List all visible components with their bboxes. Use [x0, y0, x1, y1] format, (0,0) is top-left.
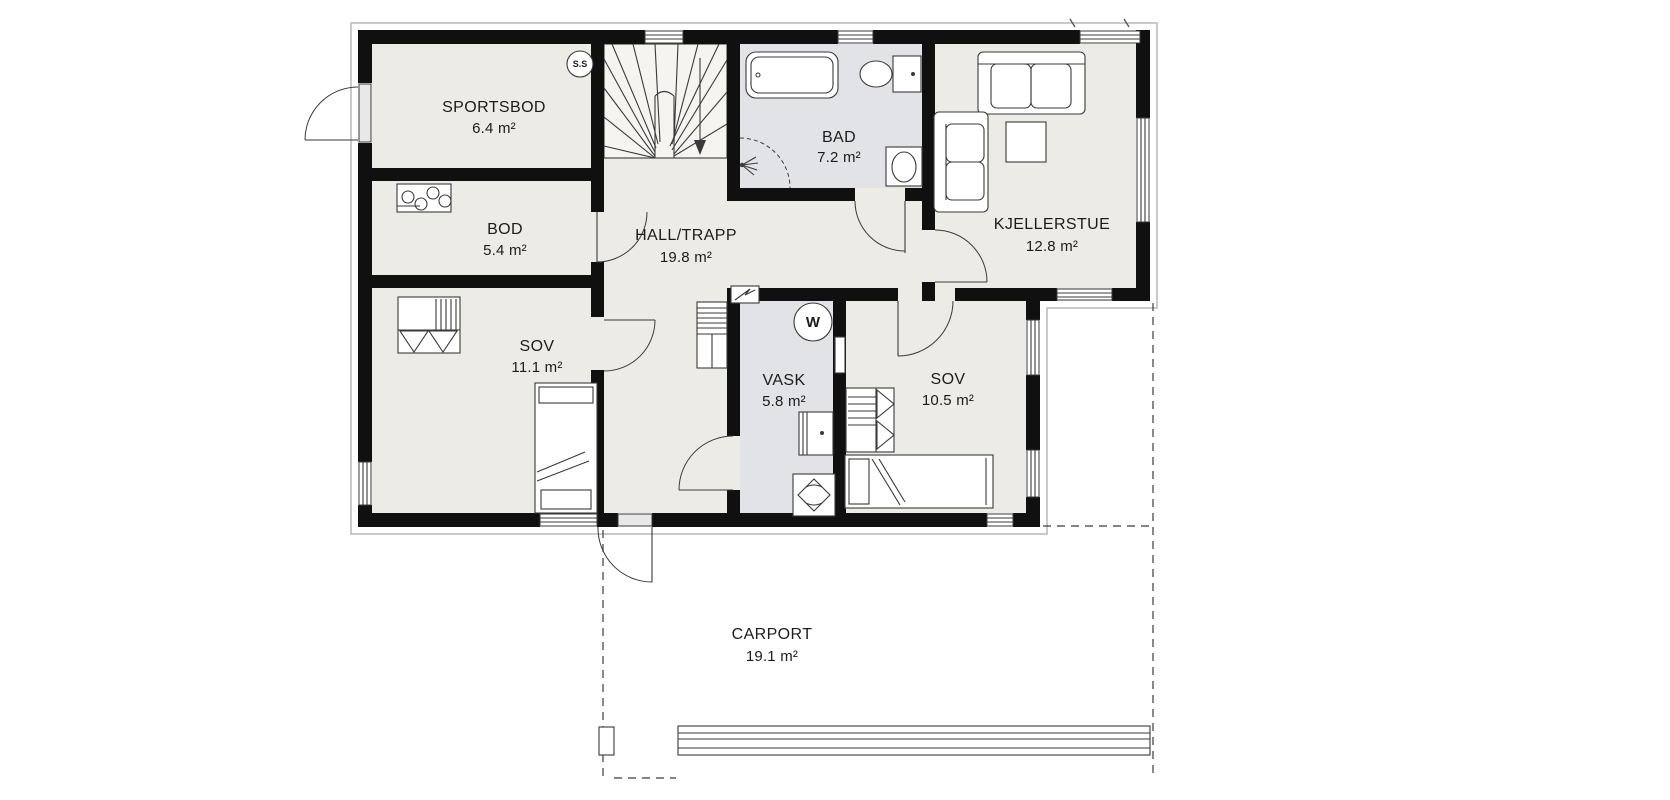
bed-sov2-icon: [845, 455, 993, 508]
floorplan-page: W: [0, 0, 1670, 800]
room-area-vask: 5.8 m²: [762, 393, 806, 410]
fuse-box-icon: [731, 286, 759, 303]
room-label-kjellerstue: KJELLERSTUE: [994, 216, 1110, 233]
side-table-icon: [1006, 122, 1046, 162]
floor-drain-icon: [793, 474, 835, 516]
window-left-sov1: [359, 462, 371, 505]
window-right-sov2-lower: [1027, 450, 1039, 497]
water-heater-label: W: [806, 314, 821, 331]
floorplan-drawing: W: [0, 0, 1670, 800]
hall-cabinet-icon: [697, 302, 727, 368]
room-label-sportsbod: SPORTSBOD: [442, 99, 546, 116]
window-top-kjellerstue: [1080, 31, 1140, 43]
wardrobe-sov2-icon: [846, 388, 894, 452]
exterior-door-sportsbod: [305, 84, 371, 142]
washing-machine-icon: [799, 412, 833, 455]
room-area-sov1: 11.1 m²: [511, 359, 562, 376]
room-area-sov2: 10.5 m²: [922, 392, 974, 409]
room-area-hall-trapp: 19.8 m²: [660, 249, 712, 266]
room-label-bad: BAD: [822, 129, 856, 146]
wall-niche: [835, 337, 845, 373]
washer-hookup-icon: [397, 184, 451, 212]
room-area-bod: 5.4 m²: [483, 242, 527, 259]
window-bottom-sov2: [987, 514, 1013, 526]
room-label-bod: BOD: [487, 221, 523, 238]
carport-post: [599, 727, 614, 755]
room-label-carport: CARPORT: [732, 626, 813, 643]
room-label-vask: VASK: [762, 372, 805, 389]
window-bottom-kjellerstue: [1057, 289, 1112, 300]
room-area-carport: 19.1 m²: [746, 648, 798, 665]
room-label-hall-trapp: HALL/TRAPP: [635, 227, 737, 244]
window-right-kjellerstue: [1137, 118, 1149, 222]
room-area-kjellerstue: 12.8 m²: [1026, 238, 1078, 255]
water-heater-icon: W: [794, 303, 832, 341]
room-area-bad: 7.2 m²: [817, 149, 861, 166]
room-area-sportsbod: 6.4 m²: [472, 120, 516, 137]
wardrobe-sov1-icon: [398, 297, 460, 353]
sofa-icon: [978, 52, 1085, 114]
room-label-sov2: SOV: [931, 371, 966, 388]
ss-symbol-label: S.S: [573, 59, 588, 69]
window-right-sov2-upper: [1027, 320, 1039, 375]
ss-symbol-icon: S.S: [567, 51, 593, 77]
washbasin-icon: [886, 147, 922, 186]
window-top-stairs: [645, 31, 683, 43]
window-top-bad: [838, 31, 873, 43]
bed-sov1-icon: [535, 383, 597, 513]
loveseat-icon: [934, 112, 988, 212]
bathtub-icon: [746, 52, 838, 98]
room-label-sov1: SOV: [520, 338, 555, 355]
window-bottom-sov1: [540, 514, 597, 526]
carport-beam: [678, 726, 1150, 755]
floor-stairs: [604, 44, 727, 158]
